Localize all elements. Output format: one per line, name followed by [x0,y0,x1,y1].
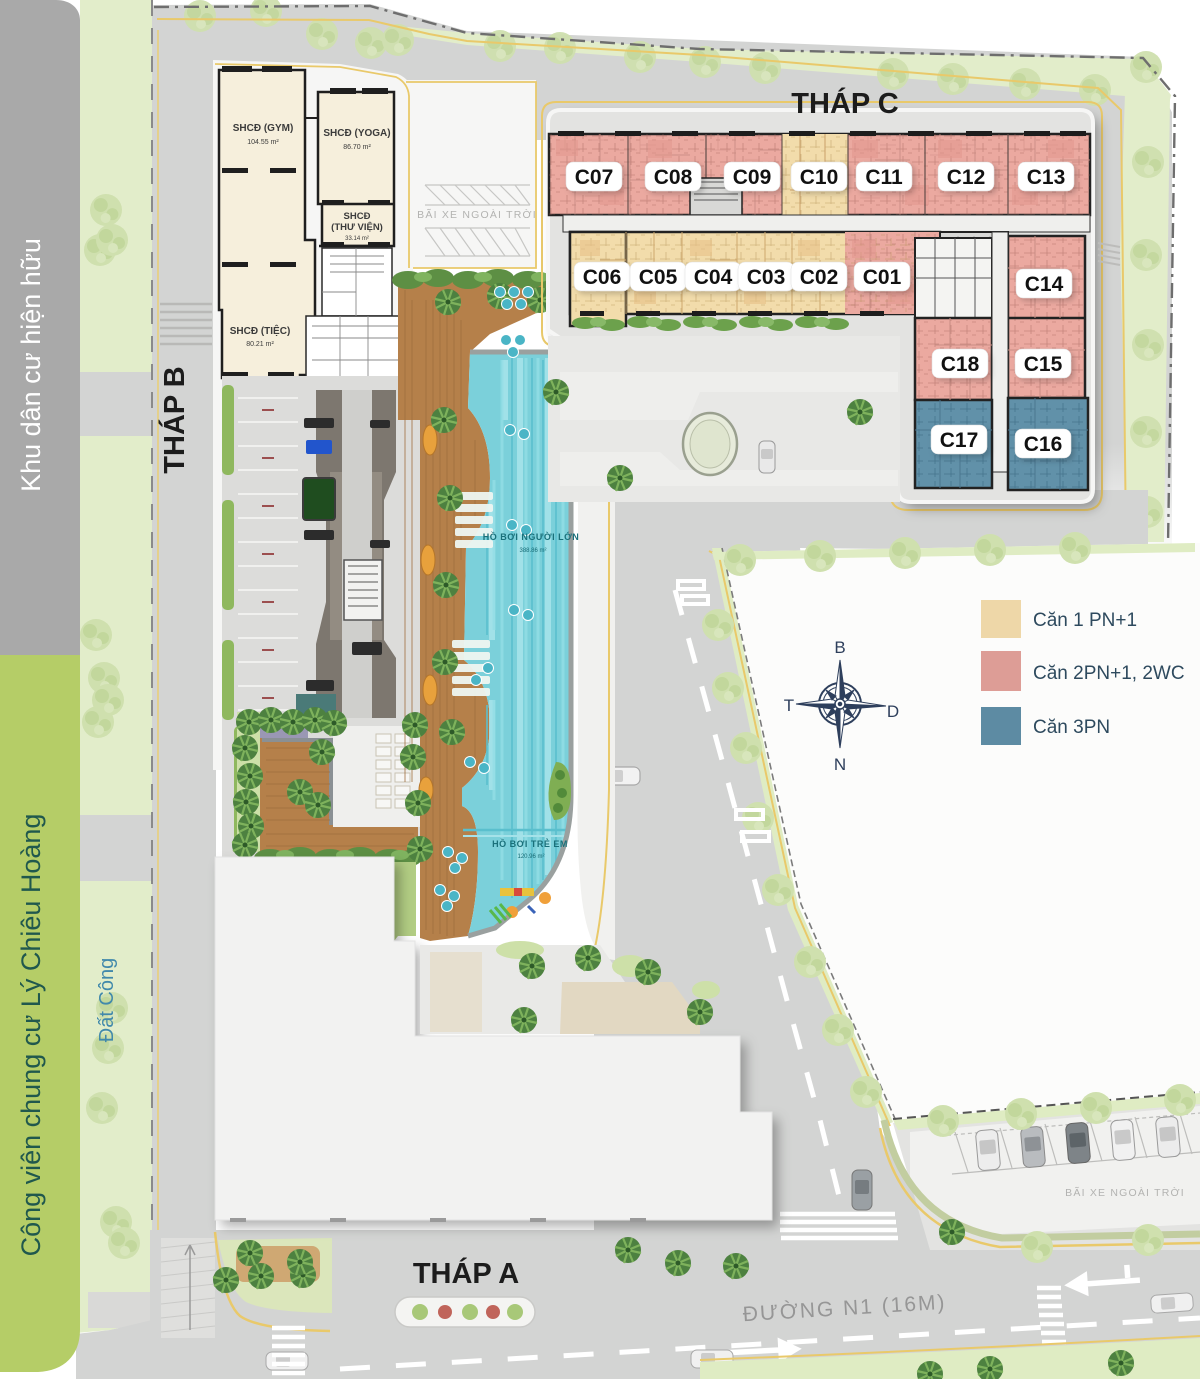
svg-text:C01: C01 [863,266,902,289]
svg-text:C14: C14 [1025,273,1064,296]
svg-text:C07: C07 [575,166,614,189]
svg-text:C12: C12 [947,166,986,189]
svg-text:T: T [784,696,794,715]
svg-text:C18: C18 [941,353,980,376]
svg-text:86.70 m²: 86.70 m² [343,144,371,151]
svg-text:C02: C02 [800,266,839,289]
svg-text:Căn 1 PN+1: Căn 1 PN+1 [1033,610,1137,631]
svg-text:C16: C16 [1024,433,1063,456]
svg-text:SHCĐ (GYM): SHCĐ (GYM) [233,123,294,134]
svg-text:C08: C08 [654,166,693,189]
svg-text:Công viên chung cư Lý Chiêu H: Công viên chung cư Lý Chiêu Hoàng [16,814,46,1257]
svg-text:C17: C17 [940,429,979,452]
svg-text:D: D [887,702,899,721]
svg-text:THÁP B: THÁP B [157,366,191,473]
svg-text:388.86 m²: 388.86 m² [519,548,546,554]
svg-text:Căn 3PN: Căn 3PN [1033,717,1110,738]
svg-text:SHCĐ (TIỆC): SHCĐ (TIỆC) [230,324,291,337]
svg-text:BÃI XE NGOÀI TRỜI: BÃI XE NGOÀI TRỜI [1065,1186,1185,1199]
svg-text:N: N [834,755,846,774]
svg-text:80.21 m²: 80.21 m² [246,341,274,348]
svg-text:Khu dân cư hiện hữu: Khu dân cư hiện hữu [16,238,46,492]
svg-text:C05: C05 [639,266,678,289]
svg-text:SHCĐ (YOGA): SHCĐ (YOGA) [323,128,390,139]
svg-text:C04: C04 [694,266,733,289]
svg-text:C15: C15 [1024,353,1063,376]
svg-text:HỒ BƠI TRẺ EM: HỒ BƠI TRẺ EM [492,838,568,849]
svg-text:33.14 m²: 33.14 m² [345,236,369,242]
svg-text:C03: C03 [747,266,786,289]
svg-text:C10: C10 [800,166,839,189]
svg-text:120.96 m²: 120.96 m² [517,854,544,860]
svg-text:HỒ BƠI NGƯỜI LỚN: HỒ BƠI NGƯỜI LỚN [483,531,580,542]
svg-text:BÃI XE NGOÀI TRỜI: BÃI XE NGOÀI TRỜI [417,208,537,221]
svg-text:C13: C13 [1027,166,1066,189]
svg-text:THÁP C: THÁP C [791,86,898,120]
svg-text:Đất Công: Đất Công [96,958,118,1043]
svg-text:THÁP A: THÁP A [413,1256,519,1290]
svg-text:B: B [834,638,845,657]
svg-text:C09: C09 [733,166,772,189]
svg-text:SHCĐ: SHCĐ [344,211,371,222]
svg-text:C11: C11 [865,166,903,189]
svg-text:Căn 2PN+1, 2WC: Căn 2PN+1, 2WC [1033,663,1185,684]
svg-text:C06: C06 [583,266,622,289]
svg-text:(THƯ VIỆN): (THƯ VIỆN) [331,221,383,233]
svg-text:104.55 m²: 104.55 m² [247,139,279,146]
